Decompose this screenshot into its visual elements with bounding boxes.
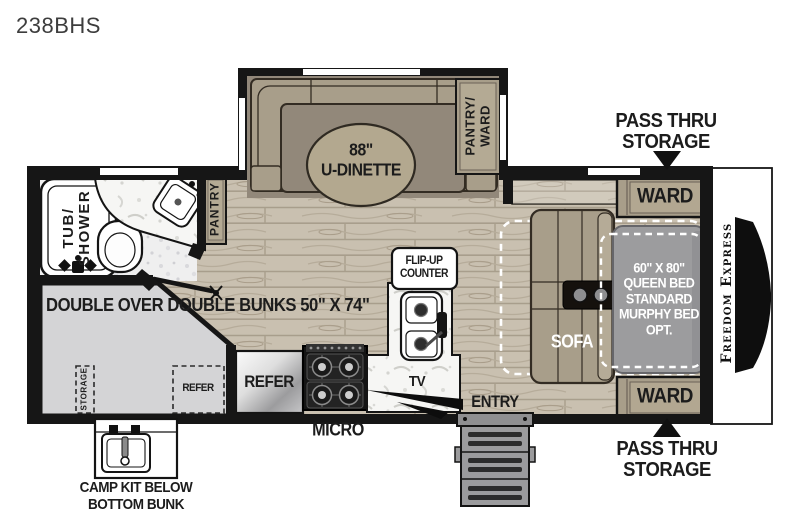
flip-up-counter-label: FLIP-UP COUNTER [400, 255, 448, 281]
cupholder [573, 288, 587, 302]
ward-top-label: WARD [637, 186, 693, 209]
sofa-console [563, 281, 619, 309]
refer-label: REFER [244, 373, 294, 391]
camp-kit-faucet [122, 437, 128, 457]
floorplan-canvas: 238BHS 88" U-DINETTE PANTRY/ WARD PASS T… [0, 0, 800, 528]
sink-faucet [189, 181, 195, 187]
entry-steps [455, 413, 535, 506]
bunk-storage-label: STORAGE [81, 368, 90, 411]
micro-label: MICRO [312, 420, 364, 439]
pantry-label: PANTRY [209, 182, 222, 236]
floorplan-title: 238BHS [16, 13, 101, 39]
dinette-label: U-DINETTE [321, 161, 401, 180]
sofa [531, 210, 619, 383]
ward-bottom-label: WARD [637, 386, 693, 409]
dinette-size-label: 88" [349, 141, 373, 160]
kitchen-sink [401, 292, 447, 360]
camp-kit-label: CAMP KIT BELOW BOTTOM BUNK [80, 480, 193, 514]
stove [303, 344, 367, 410]
pantry-ward-label: PANTRY/ WARD [463, 96, 492, 155]
bunks-label: DOUBLE OVER DOUBLE BUNKS 50" X 74" [46, 294, 369, 316]
sofa-label: SOFA [551, 332, 593, 351]
tub-shower-label: TUB/ SHOWER [61, 190, 93, 267]
queen-bed-label: 60" X 80" QUEEN BED STANDARD MURPHY BED … [619, 261, 699, 338]
pass-thru-storage-top-label: PASS THRU STORAGE [615, 111, 716, 153]
bunk-refer-label: REFER [182, 383, 213, 395]
pass-thru-storage-bottom-label: PASS THRU STORAGE [616, 439, 717, 481]
camp-kit [95, 419, 177, 478]
entry-label: ENTRY [471, 394, 519, 412]
tv-label: TV [409, 374, 425, 390]
brand-label: Freedom Express [719, 223, 735, 364]
